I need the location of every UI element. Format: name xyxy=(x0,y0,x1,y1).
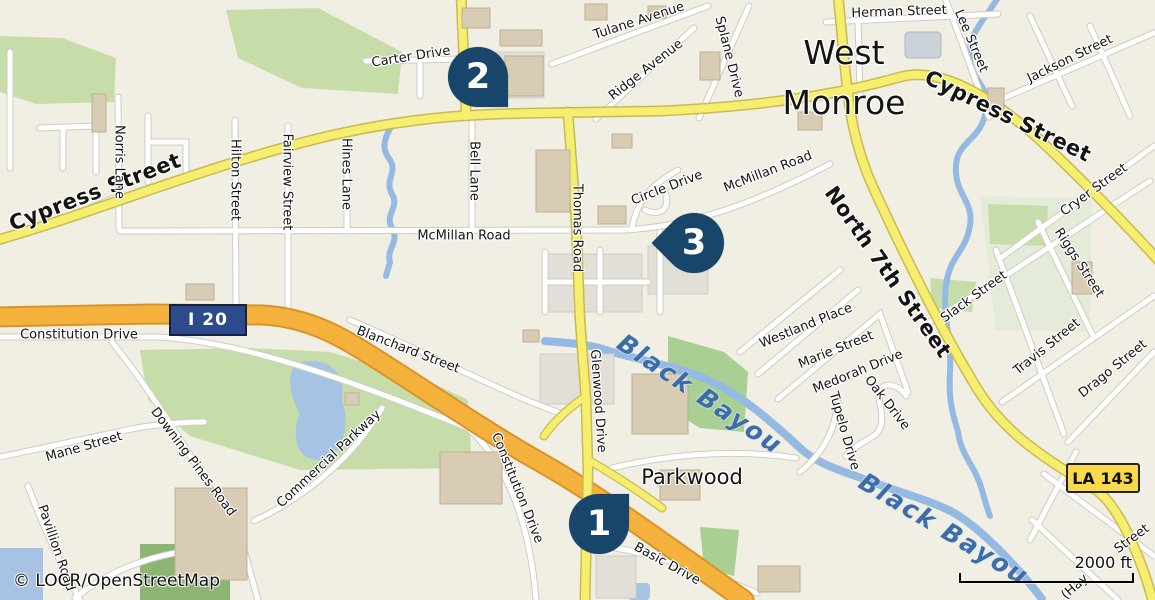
route-shield-la143: LA 143 xyxy=(1066,463,1140,493)
map-marker-number: 2 xyxy=(448,47,508,107)
map-marker-2[interactable]: 2 xyxy=(448,47,508,107)
map-canvas[interactable]: Cypress StreetCypress StreetNorth 7th St… xyxy=(0,0,1155,600)
route-shield-i20: I 20 xyxy=(169,304,247,336)
map-marker-3[interactable]: 3 xyxy=(652,201,737,286)
map-attribution[interactable]: © LOCR/OpenStreetMap xyxy=(13,571,220,591)
map-marker-number: 1 xyxy=(569,494,629,554)
map-marker-number: 3 xyxy=(664,213,724,273)
map-marker-1[interactable]: 1 xyxy=(569,494,629,554)
